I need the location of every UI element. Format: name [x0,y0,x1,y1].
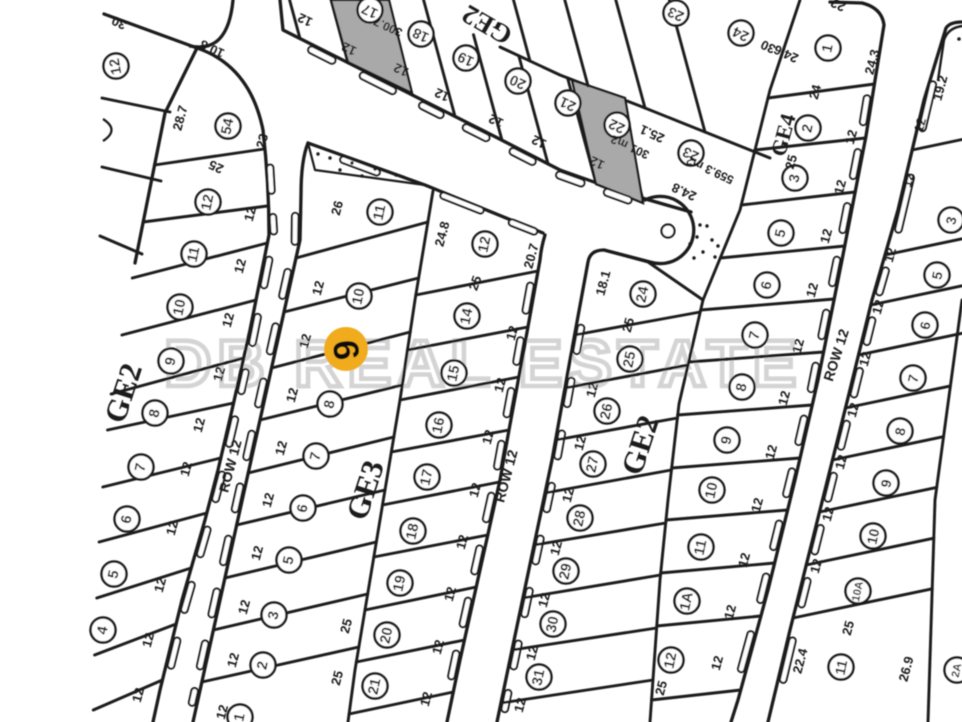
svg-text:25: 25 [620,350,639,369]
svg-text:18: 18 [403,522,422,541]
svg-text:11: 11 [692,538,711,556]
svg-text:11: 11 [185,245,204,263]
svg-text:24: 24 [633,285,652,304]
svg-text:28: 28 [570,509,589,528]
svg-text:9: 9 [325,338,368,362]
svg-text:19: 19 [390,574,409,593]
svg-text:27: 27 [583,455,602,474]
svg-text:10: 10 [170,298,189,317]
svg-text:2A: 2A [950,662,962,678]
svg-text:12: 12 [107,57,126,76]
svg-text:21: 21 [365,677,384,696]
svg-text:12: 12 [661,651,680,670]
svg-text:30: 30 [543,615,562,634]
svg-text:10: 10 [702,481,721,500]
svg-text:29: 29 [556,562,575,581]
svg-text:12: 12 [475,235,494,254]
svg-text:12: 12 [198,193,217,212]
svg-text:31: 31 [529,668,548,687]
svg-text:20: 20 [377,626,396,645]
svg-text:26: 26 [597,402,616,421]
svg-text:15: 15 [444,364,463,383]
svg-text:16: 16 [429,416,448,435]
svg-text:54: 54 [218,117,237,136]
svg-text:14: 14 [457,307,476,326]
svg-text:11: 11 [371,203,390,221]
svg-text:10: 10 [349,287,368,306]
svg-text:17: 17 [417,468,436,487]
